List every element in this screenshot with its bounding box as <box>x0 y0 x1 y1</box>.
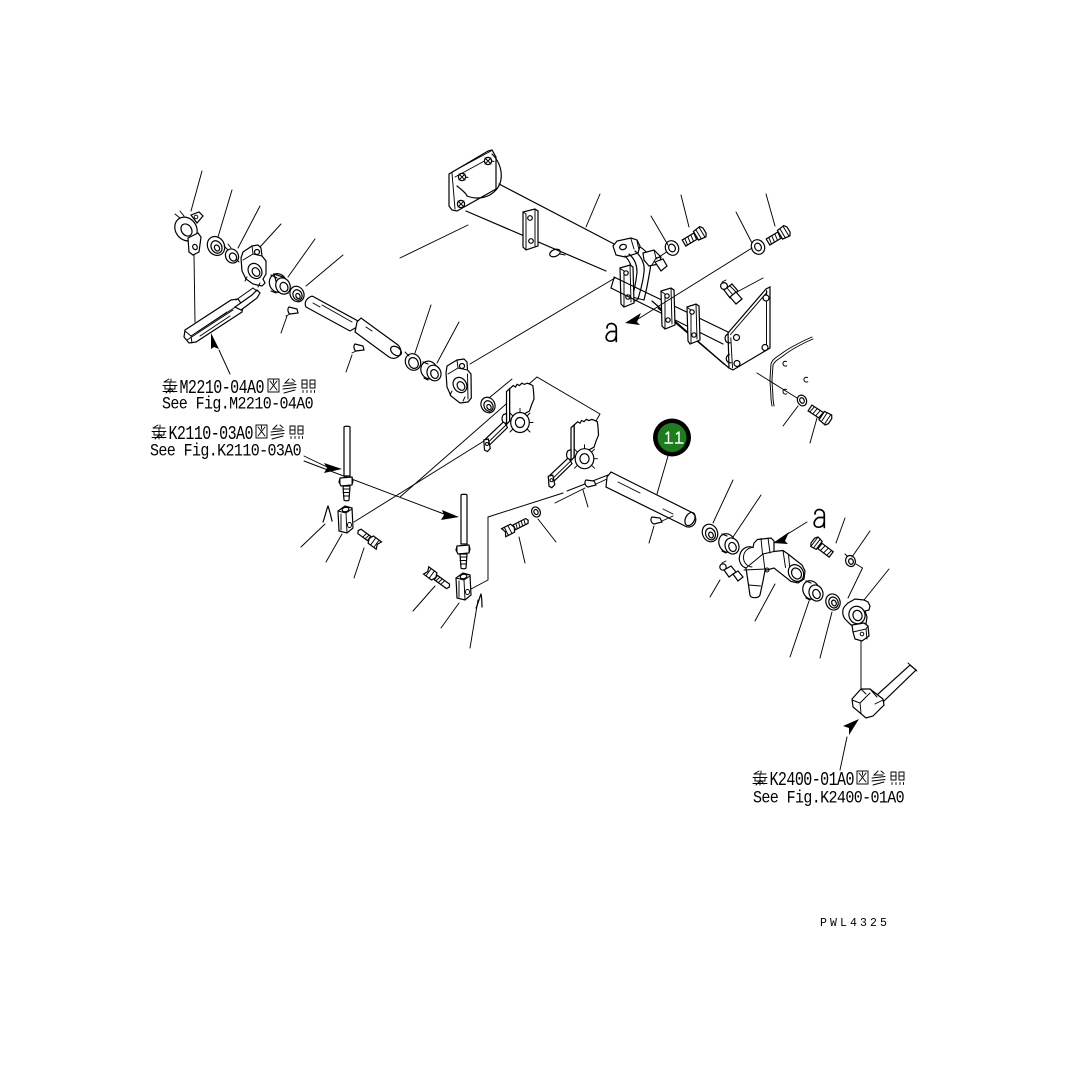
svg-text:See Fig.M2210-04A0: See Fig.M2210-04A0 <box>162 393 313 413</box>
svg-text:See Fig.K2400-01A0: See Fig.K2400-01A0 <box>753 787 904 807</box>
svg-text:See Fig.K2110-03A0: See Fig.K2110-03A0 <box>150 440 301 460</box>
svg-text:PWL4325: PWL4325 <box>820 917 890 930</box>
